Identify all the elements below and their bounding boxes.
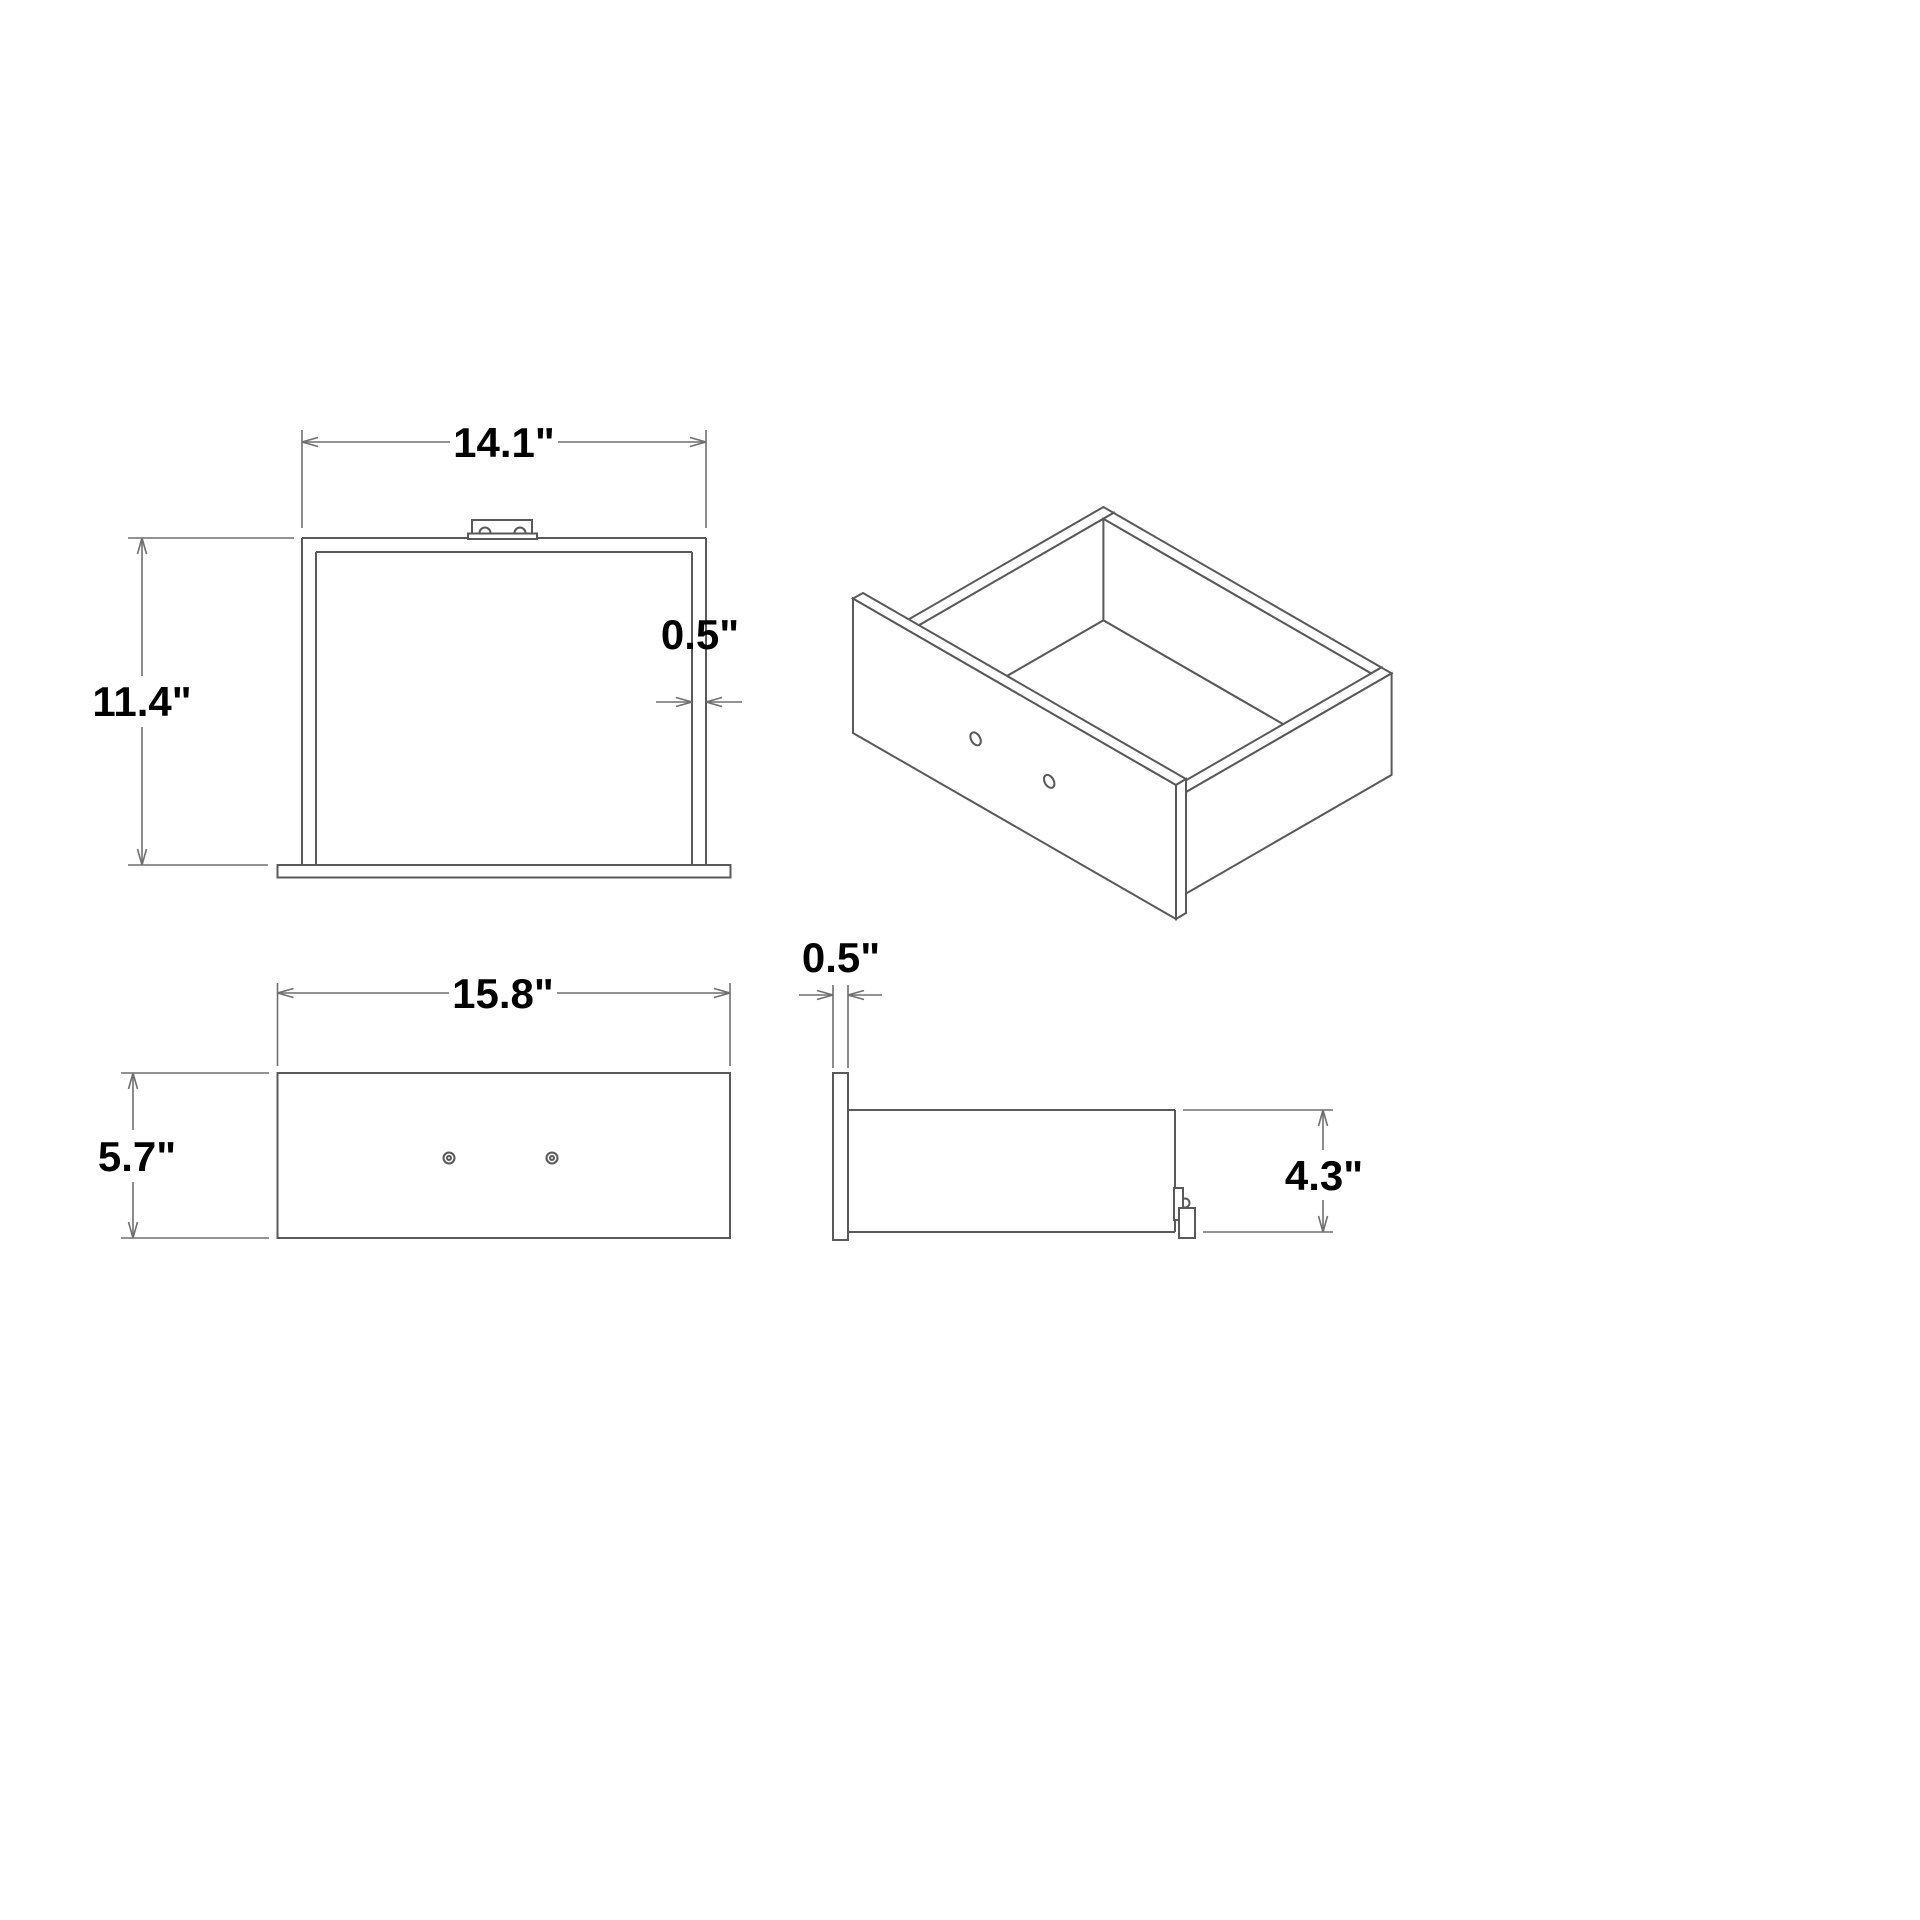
top-view: 14.1" 11.4" 0.5" — [92, 419, 742, 878]
front-view-width-dimension: 15.8" — [278, 970, 731, 1066]
top-view-inner-walls — [316, 552, 692, 865]
side-view-body-height-dimension: 4.3" — [1183, 1110, 1363, 1232]
top-view-bracket-base — [468, 534, 537, 540]
side-view-front-panel — [833, 1073, 848, 1240]
iso-front-panel-end-cap — [1176, 779, 1186, 919]
drawing-svg: 14.1" 11.4" 0.5" — [0, 0, 1920, 1920]
front-view-height-dim-label: 5.7" — [98, 1133, 176, 1180]
front-view-hole-right — [547, 1153, 558, 1164]
front-view-hole-right-center — [550, 1156, 554, 1160]
front-view-height-dimension: 5.7" — [98, 1073, 269, 1238]
extension-lines — [833, 985, 848, 1068]
drawing-canvas: 14.1" 11.4" 0.5" — [0, 0, 1920, 1920]
top-view-outer-walls — [302, 538, 706, 865]
top-view-wall-thickness-dim-label: 0.5" — [661, 611, 739, 658]
front-view: 15.8" 5.7" — [98, 970, 730, 1238]
front-view-hole-left-center — [447, 1156, 451, 1160]
top-view-wall-thickness-dimension: 0.5" — [656, 611, 742, 707]
front-view-hole-left — [444, 1153, 455, 1164]
side-view-thickness-dim-label: 0.5" — [802, 934, 880, 981]
front-view-panel — [278, 1073, 731, 1238]
front-view-width-dim-label: 15.8" — [452, 970, 554, 1017]
isometric-view — [853, 507, 1392, 919]
side-view: 0.5" 4.3" — [799, 934, 1363, 1240]
side-view-latch-foot — [1179, 1208, 1195, 1238]
top-view-depth-dim-label: 11.4" — [92, 678, 191, 725]
side-view-body-height-dim-label: 4.3" — [1285, 1152, 1363, 1199]
top-view-front-panel — [278, 865, 731, 878]
side-view-body — [848, 1110, 1175, 1232]
top-view-depth-dimension: 11.4" — [92, 538, 294, 865]
side-view-thickness-dimension: 0.5" — [799, 934, 882, 1068]
top-view-width-dimension: 14.1" — [302, 419, 706, 528]
top-view-width-dim-label: 14.1" — [453, 419, 555, 466]
